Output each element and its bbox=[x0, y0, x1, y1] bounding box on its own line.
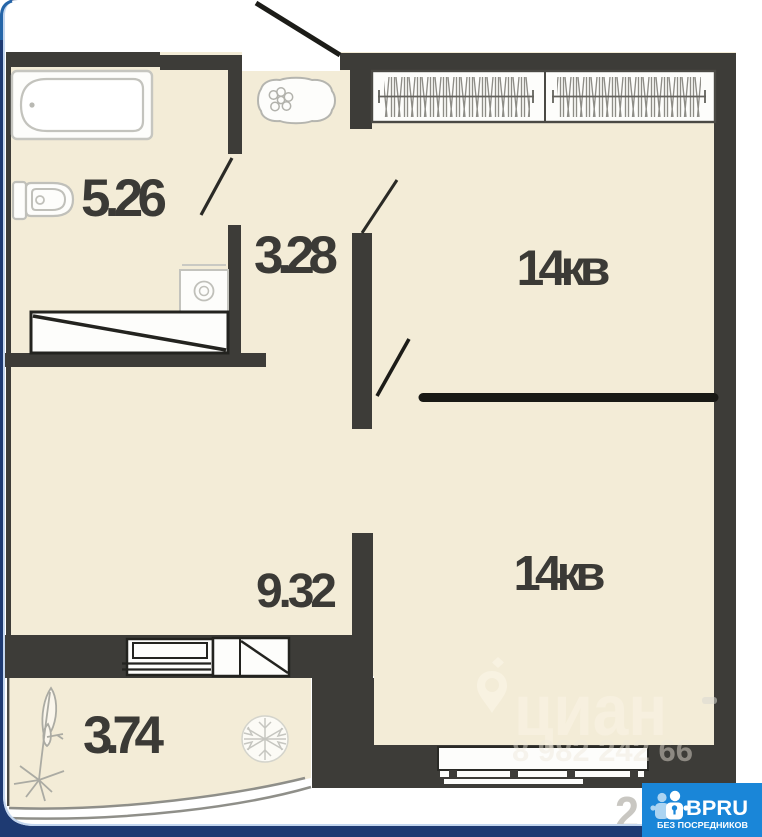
svg-text:3.74: 3.74 bbox=[83, 706, 165, 765]
svg-text:14кв: 14кв bbox=[514, 547, 606, 601]
svg-text:БЕЗ ПОСРЕДНИКОВ: БЕЗ ПОСРЕДНИКОВ bbox=[657, 820, 748, 830]
svg-text:14кв: 14кв bbox=[517, 240, 611, 296]
svg-text:9.32: 9.32 bbox=[256, 565, 337, 618]
svg-text:3.28: 3.28 bbox=[254, 226, 338, 285]
svg-text:5.26: 5.26 bbox=[81, 169, 167, 228]
svg-text:8 982 242 66: 8 982 242 66 bbox=[512, 733, 693, 768]
svg-text:BPRU: BPRU bbox=[686, 797, 748, 820]
